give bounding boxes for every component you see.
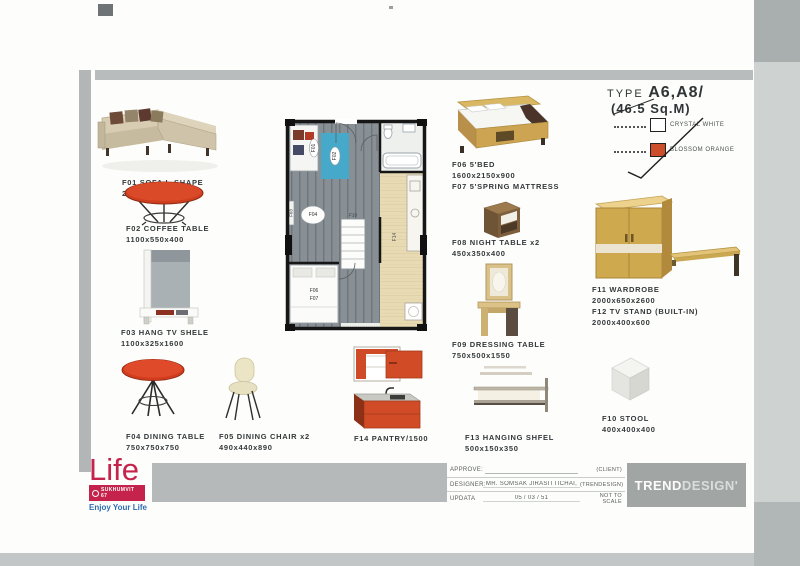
plan-basin	[403, 124, 415, 132]
f03-caption: F03 HANG TV SHELE 1100x325x1600	[121, 327, 209, 349]
plan-column-left	[285, 235, 292, 255]
update-note: NOT TO SCALE	[580, 493, 622, 505]
f03-label: F03 HANG TV SHELE	[121, 327, 209, 338]
plan-washer	[405, 303, 422, 320]
f11-label: F11 WARDROBE	[592, 284, 698, 295]
coffee-table-image	[118, 180, 210, 226]
brand-sub-label: SUKHUMVIT 67	[101, 487, 142, 499]
f06-caption: F06 5'BED 1600x2150x900 F07 5'SPRING MAT…	[452, 159, 559, 192]
f05-dims: 490x440x890	[219, 442, 310, 453]
pantry-image	[350, 342, 436, 434]
update-row: UPDATA 05 / 03 / 51 NOT TO SCALE	[447, 491, 625, 505]
scan-band-left	[79, 70, 91, 472]
f04-caption: F04 DINING TABLE 750x750x750	[126, 431, 205, 453]
plan-label-f06: F06	[310, 288, 319, 294]
night-table-image	[476, 196, 524, 242]
plan-label-f13: F13	[349, 213, 357, 218]
f10-dims: 400x400x400	[602, 424, 656, 435]
f08-label: F08 NIGHT TABLE x2	[452, 237, 540, 248]
f03-dims: 1100x325x1600	[121, 338, 209, 349]
f13-caption: F13 HANGING SHFEL 500x150x350	[465, 432, 554, 454]
scan-edge-right-top	[754, 0, 800, 62]
floor-plan: F01 F02 F03 F04 F06 F07 F13 F14	[283, 117, 429, 333]
plan-label-f04: F04	[309, 212, 318, 218]
plan-label-f03: F03	[289, 209, 294, 217]
designer-label: DESIGNER:	[450, 482, 483, 488]
brand-sub-box: SUKHUMVIT 67	[89, 485, 145, 501]
f09-caption: F09 DRESSING TABLE 750x500x1550	[452, 339, 545, 361]
title-block: APPROVE: (CLIENT) DESIGNER: MR. SOMSAK J…	[447, 463, 625, 506]
wardrobe-tv-stand-image	[586, 192, 744, 287]
plan-label-f07: F07	[310, 296, 319, 302]
approve-note: (CLIENT)	[580, 467, 622, 473]
f08-caption: F08 NIGHT TABLE x2 450x350x400	[452, 237, 540, 259]
update-date: 05 / 03 / 51	[483, 495, 580, 502]
f04-label: F04 DINING TABLE	[126, 431, 205, 442]
hanging-shelf-image	[466, 360, 564, 420]
hang-tv-shelf-image	[130, 246, 205, 328]
dressing-table-image	[470, 262, 528, 340]
signature-line	[485, 466, 578, 474]
brand-logo: Life	[89, 455, 167, 485]
designer-note: (TRENDESIGN)	[580, 482, 622, 488]
f08-dims: 450x350x400	[452, 248, 540, 259]
f10-label: F10 STOOL	[602, 413, 656, 424]
brand-tagline: Enjoy Your Life	[89, 503, 167, 512]
plan-label-f14: F14	[392, 232, 398, 241]
scan-speck	[389, 6, 393, 9]
plan-bathtub	[383, 153, 421, 168]
plan-label-f01: F01	[311, 143, 317, 152]
f11-f12-caption: F11 WARDROBE 2000x650x2600 F12 TV STAND …	[592, 284, 698, 328]
update-label: UPDATA	[450, 496, 483, 502]
scan-band-top	[95, 70, 753, 80]
bed-image	[446, 92, 552, 164]
f02-dims: 1100x550x400	[126, 234, 209, 245]
f09-label: F09 DRESSING TABLE	[452, 339, 545, 350]
f06-dims: 1600x2150x900	[452, 170, 559, 181]
f14-caption: F14 PANTRY/1500	[354, 433, 428, 444]
approve-row: APPROVE: (CLIENT)	[447, 463, 625, 477]
f13-dims: 500x150x350	[465, 443, 554, 454]
trenddesign-logo-box: TRENDDESIGN'	[627, 463, 746, 507]
scan-edge-right-bottom	[754, 502, 800, 566]
sofa-l-shape-image	[94, 92, 229, 177]
scanned-furniture-spec-sheet: TYPE A6,A8/ (46.5 Sq.M) CRYSTAL WHITE BL…	[0, 0, 800, 566]
scan-edge-bottom	[0, 553, 754, 566]
f05-caption: F05 DINING CHAIR x2 490x440x890	[219, 431, 310, 453]
designer-value: MR. SOMSAK JIRASITTICHAI,	[483, 481, 580, 488]
stool-image	[602, 352, 657, 407]
f07-label: F07 5'SPRING MATTRESS	[452, 181, 559, 192]
studio-name-part2: DESIGN'	[682, 478, 738, 493]
dining-chair-image	[216, 354, 271, 426]
f11-dims: 2000x650x2600	[592, 295, 698, 306]
plan-shelf-unit	[341, 219, 365, 269]
approve-label: APPROVE:	[450, 467, 483, 473]
f13-label: F13 HANGING SHFEL	[465, 432, 554, 443]
dining-table-image	[116, 356, 191, 424]
plan-label-f02: F02	[332, 151, 338, 160]
f14-label: F14 PANTRY/1500	[354, 433, 428, 444]
f02-caption: F02 COFFEE TABLE 1100x550x400	[126, 223, 209, 245]
scan-corner-mark	[98, 4, 113, 16]
footer-gray-band	[152, 463, 447, 502]
brand-circle-icon	[92, 490, 99, 497]
brand-block: Life SUKHUMVIT 67 Enjoy Your Life	[89, 455, 167, 512]
f12-dims: 2000x400x600	[592, 317, 698, 328]
designer-row: DESIGNER: MR. SOMSAK JIRASITTICHAI, (TRE…	[447, 477, 625, 491]
f12-label: F12 TV STAND (BUILT-IN)	[592, 306, 698, 317]
f05-label: F05 DINING CHAIR x2	[219, 431, 310, 442]
f06-label: F06 5'BED	[452, 159, 559, 170]
studio-name-part1: TREND	[635, 478, 682, 493]
f02-label: F02 COFFEE TABLE	[126, 223, 209, 234]
f10-caption: F10 STOOL 400x400x400	[602, 413, 656, 435]
pen-check-marks	[600, 84, 770, 184]
plan-column-right	[420, 235, 427, 255]
